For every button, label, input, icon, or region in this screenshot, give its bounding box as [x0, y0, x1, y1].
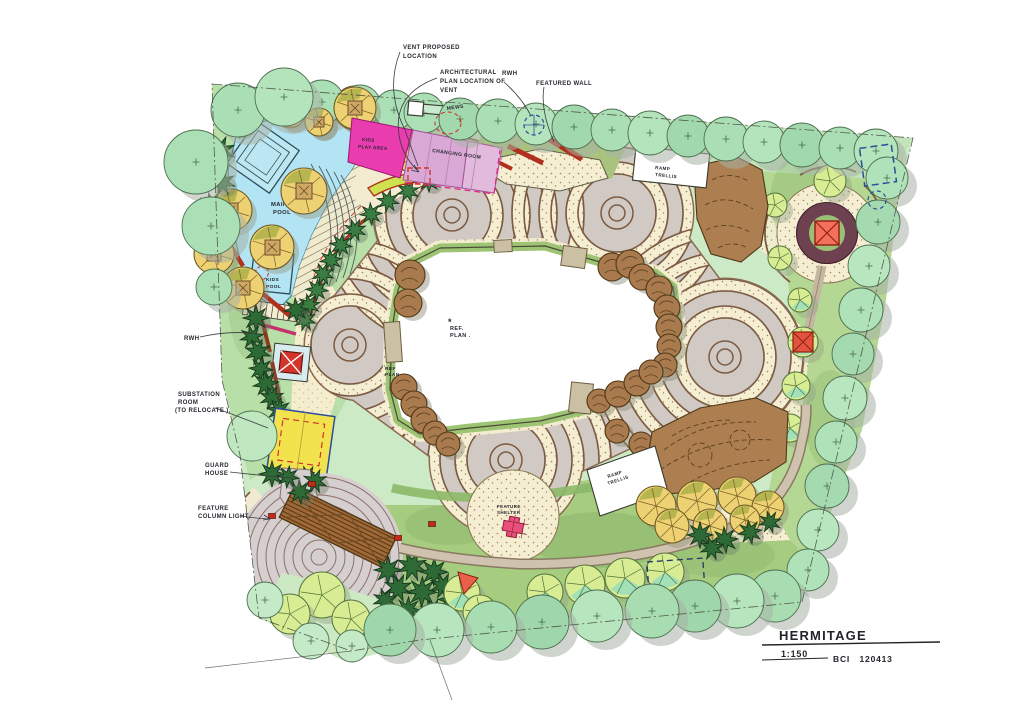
- svg-text:RWH: RWH: [502, 71, 517, 77]
- svg-text:SHELTER: SHELTER: [497, 510, 521, 515]
- svg-text:KIDS: KIDS: [362, 137, 375, 143]
- svg-text:KIDS: KIDS: [266, 277, 279, 283]
- svg-text:FEATURE: FEATURE: [497, 504, 521, 509]
- svg-text:FEATURE: FEATURE: [198, 506, 229, 512]
- svg-text:GUARD: GUARD: [205, 463, 229, 469]
- svg-text:REF.: REF.: [450, 326, 464, 332]
- svg-text:SUBSTATION: SUBSTATION: [178, 392, 220, 398]
- svg-text:POOL: POOL: [273, 210, 291, 216]
- svg-text:ROOM: ROOM: [178, 400, 198, 406]
- svg-text:BCI 120413: BCI 120413: [833, 654, 893, 664]
- svg-text:(TO RELOCATE ): (TO RELOCATE ): [175, 408, 229, 414]
- svg-text:REF: REF: [385, 366, 396, 372]
- svg-text:HOUSE: HOUSE: [205, 471, 228, 477]
- svg-text:VENT PROPOSED: VENT PROPOSED: [403, 45, 460, 51]
- svg-text:LOCATION: LOCATION: [403, 54, 437, 60]
- svg-text:PLAN .: PLAN .: [450, 333, 470, 339]
- svg-text:FEATURED WALL: FEATURED WALL: [536, 81, 592, 87]
- svg-text:HERMITAGE: HERMITAGE: [779, 628, 867, 643]
- svg-text:1:150: 1:150: [781, 649, 808, 659]
- svg-text:PLAN: PLAN: [385, 372, 400, 378]
- svg-text:COLUMN LIGHT: COLUMN LIGHT: [198, 514, 249, 520]
- svg-text:VENT: VENT: [440, 88, 458, 94]
- svg-text:RWH: RWH: [184, 336, 199, 342]
- svg-text:ARCH/TECTURAL: ARCH/TECTURAL: [440, 70, 497, 76]
- svg-text:PLAN LOCATION OF: PLAN LOCATION OF: [440, 79, 505, 85]
